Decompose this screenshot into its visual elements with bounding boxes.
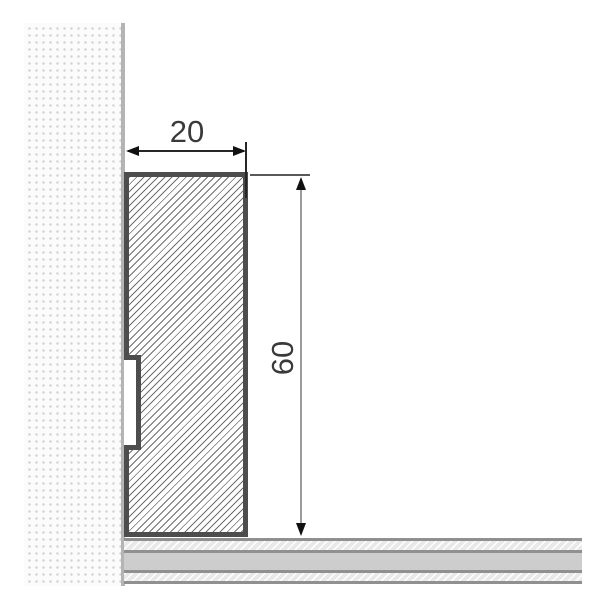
- width-dimension-line: [128, 150, 244, 152]
- skirting-profile: [124, 172, 248, 537]
- floor-bottom-edge: [124, 581, 582, 584]
- width-dimension-label: 20: [170, 114, 204, 150]
- floor-solid-layer: [124, 553, 582, 570]
- floor-hatch-layer-1: [124, 541, 582, 550]
- arrowhead-down-icon: [296, 523, 306, 536]
- arrowhead-up-icon: [296, 177, 306, 190]
- height-dimension-extension-line: [250, 174, 310, 176]
- height-dimension-label: 60: [265, 341, 301, 375]
- wall-section: [24, 23, 125, 586]
- arrowhead-left-icon: [126, 146, 139, 156]
- floor-section: [124, 538, 582, 584]
- skirting-back-groove: [124, 355, 141, 450]
- floor-hatch-layer-2: [124, 573, 582, 581]
- technical-drawing: 20 60: [0, 0, 604, 604]
- width-dimension-extension-line: [245, 142, 247, 198]
